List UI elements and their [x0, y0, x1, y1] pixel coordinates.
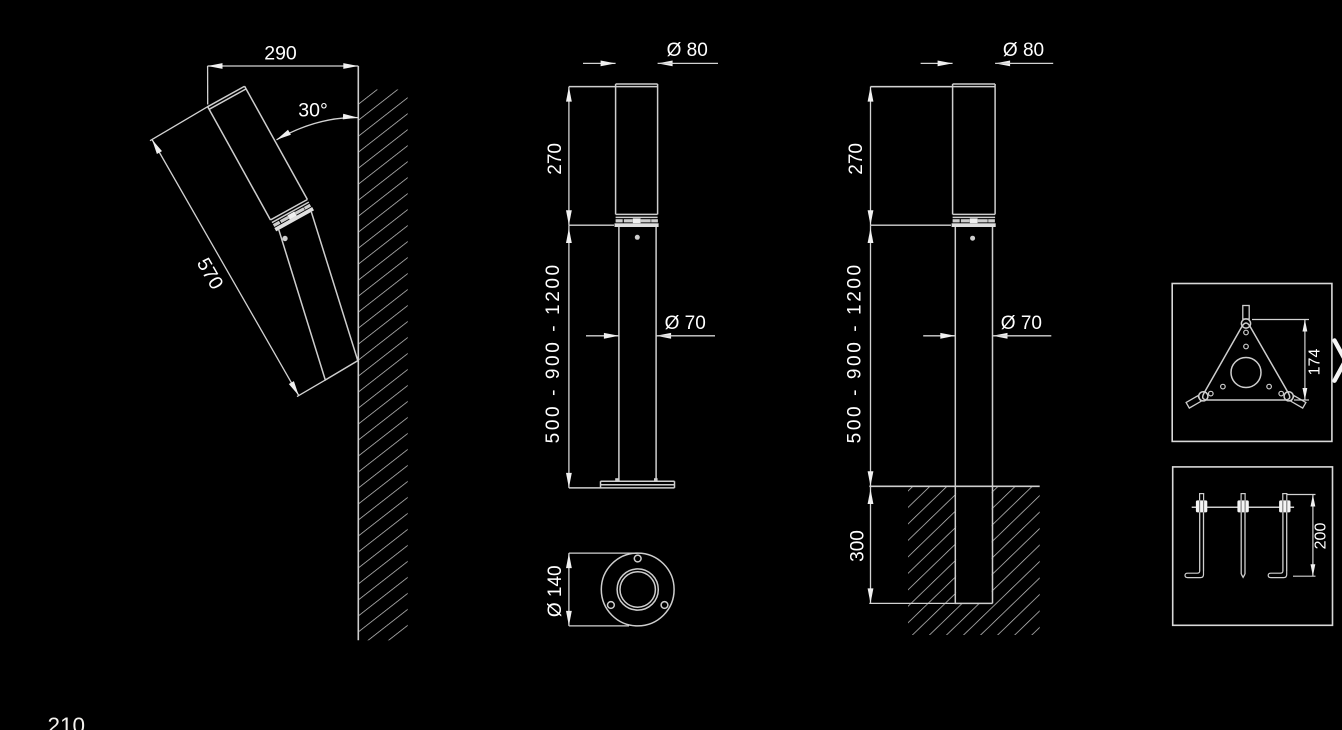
- svg-text:30°: 30°: [298, 100, 328, 122]
- svg-text:174: 174: [1306, 349, 1323, 376]
- svg-text:300: 300: [847, 530, 868, 562]
- svg-text:270: 270: [545, 143, 566, 175]
- svg-text:290: 290: [264, 43, 297, 65]
- svg-text:200: 200: [1313, 523, 1330, 550]
- svg-text:Ø 70: Ø 70: [665, 313, 706, 334]
- svg-text:Ø 140: Ø 140: [545, 565, 566, 617]
- svg-text:500 - 900 - 1200: 500 - 900 - 1200: [844, 262, 865, 443]
- svg-text:Ø 80: Ø 80: [1003, 40, 1044, 61]
- svg-text:270: 270: [846, 143, 867, 175]
- svg-text:210: 210: [48, 713, 86, 730]
- svg-text:500 - 900 - 1200: 500 - 900 - 1200: [543, 262, 564, 443]
- svg-text:Ø 80: Ø 80: [667, 40, 708, 61]
- svg-text:Ø 70: Ø 70: [1001, 313, 1042, 334]
